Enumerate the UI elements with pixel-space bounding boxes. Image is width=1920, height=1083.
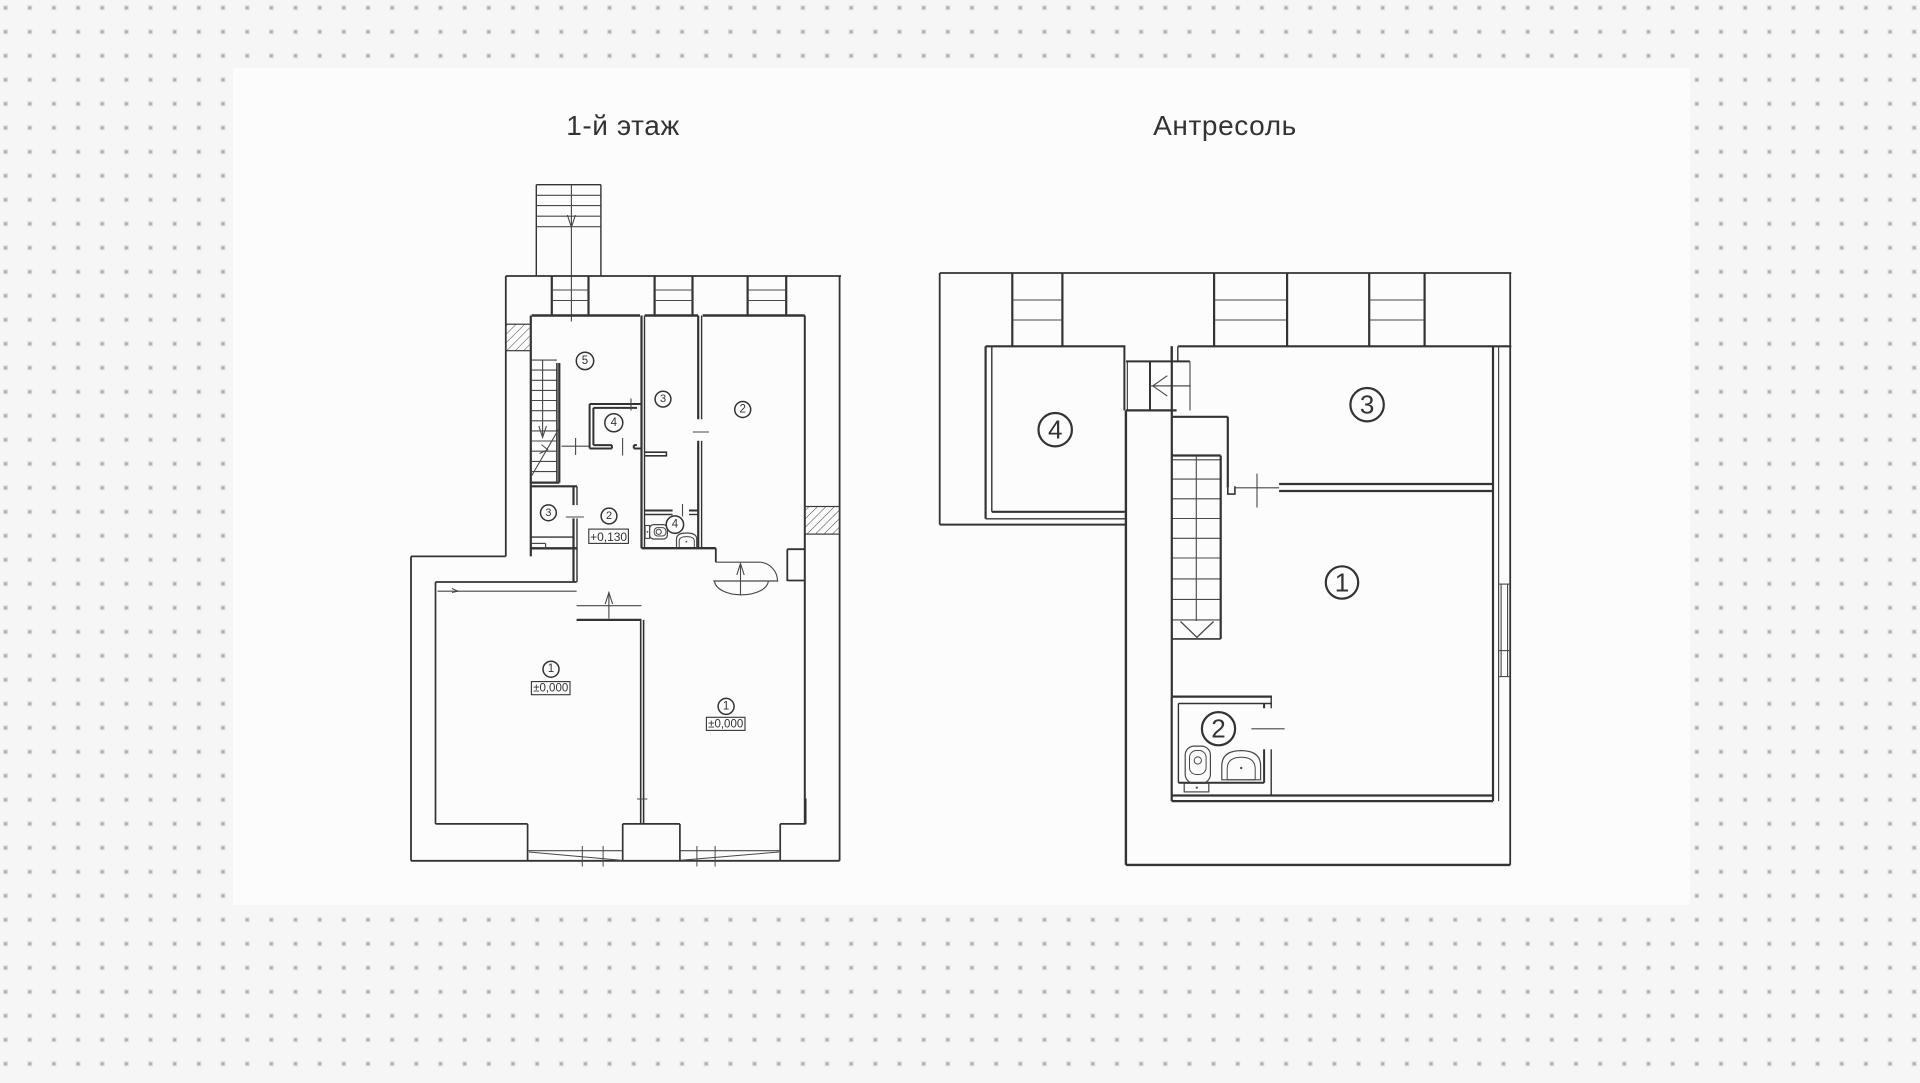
svg-text:1-й этаж: 1-й этаж [566,110,680,141]
svg-text:1: 1 [1335,568,1349,598]
svg-text:+0,130: +0,130 [590,530,627,544]
svg-text:5: 5 [582,355,588,367]
svg-text:2: 2 [1211,714,1225,744]
svg-text:4: 4 [672,519,679,531]
svg-text:2: 2 [606,510,612,522]
svg-text:1: 1 [548,663,554,675]
svg-text:3: 3 [660,393,666,405]
svg-text:4: 4 [1048,415,1062,445]
svg-text:1: 1 [723,700,729,712]
svg-text:3: 3 [545,507,551,519]
svg-text:2: 2 [739,404,745,416]
svg-text:3: 3 [1360,390,1374,420]
svg-text:±0,000: ±0,000 [708,718,743,730]
svg-text:±0,000: ±0,000 [533,683,568,695]
svg-text:Антресоль: Антресоль [1153,110,1297,141]
svg-text:4: 4 [611,417,618,429]
